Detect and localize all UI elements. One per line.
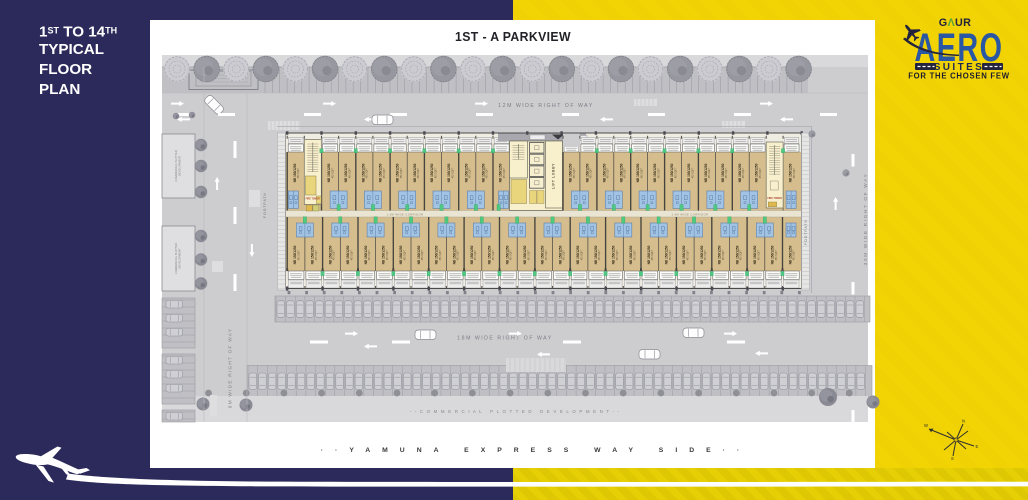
svg-text:FIRE TOWER: FIRE TOWER [306,199,321,201]
svg-text:FOR THE CHOSEN FEW: FOR THE CHOSEN FEW [908,71,1010,80]
svg-text:··YAMUNA EXPRESS WAY SIDE··: ··YAMUNA EXPRESS WAY SIDE·· [321,447,751,454]
svg-text:18M WIDE RIGHT OF WAY: 18M WIDE RIGHT OF WAY [457,336,552,342]
svg-text:30M WIDE RIGHT OF WAY: 30M WIDE RIGHT OF WAY [863,173,869,266]
svg-text:1.5M WIDE CORRIDOR: 1.5M WIDE CORRIDOR [386,212,423,216]
svg-text:FOOTPATH: FOOTPATH [804,219,808,245]
svg-text:LIFT LOBBY: LIFT LOBBY [552,163,556,189]
svg-text:N: N [962,419,965,424]
svg-text:12M WIDE RIGHT OF WAY: 12M WIDE RIGHT OF WAY [498,103,593,109]
svg-text:FLOOR: FLOOR [39,61,92,78]
svg-text:1.5M WIDE CORRIDOR: 1.5M WIDE CORRIDOR [671,212,708,216]
svg-text:E: E [976,444,979,449]
svg-text:TYPICAL: TYPICAL [39,41,104,58]
svg-text:- - C O M M E R C I A L P L: - - C O M M E R C I A L P L O T T E D D … [410,409,621,414]
svg-text:FIRE TOWER: FIRE TOWER [768,198,783,200]
svg-text:1ST - A PARKVIEW: 1ST - A PARKVIEW [455,29,571,45]
svg-text:FOOTPATH: FOOTPATH [263,192,267,218]
svg-text:9M WIDE RIGHT OF WAY: 9M WIDE RIGHT OF WAY [228,328,234,408]
svg-text:S: S [951,456,954,461]
svg-text:W: W [924,423,928,428]
svg-text:PLAN: PLAN [39,81,80,98]
